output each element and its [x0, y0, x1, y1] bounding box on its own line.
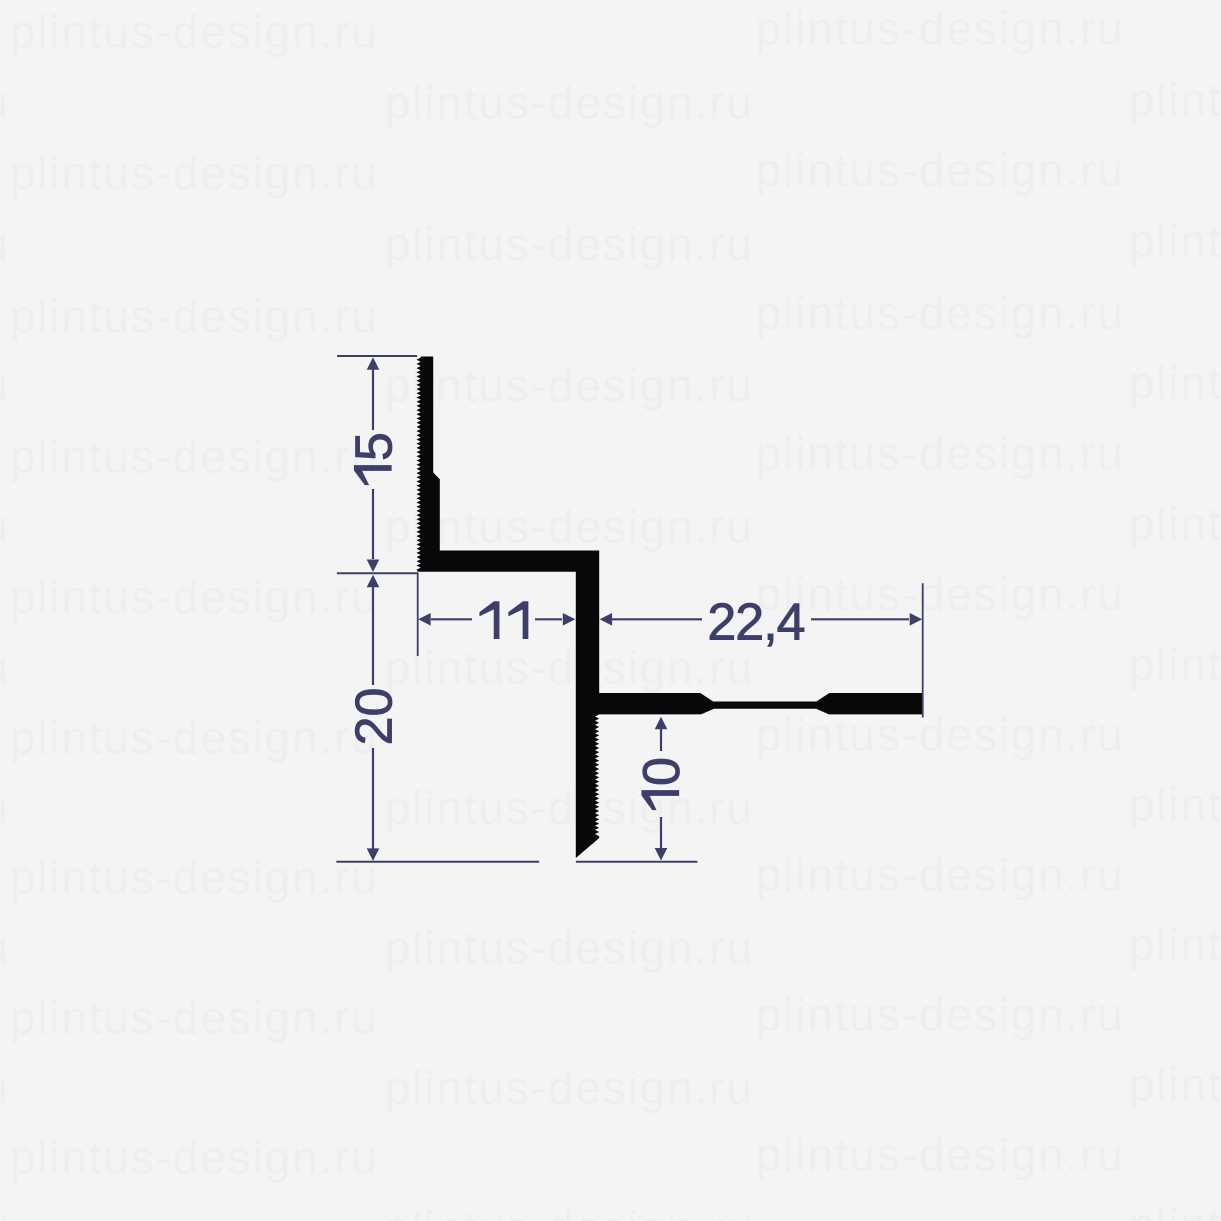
svg-text:plintus-design.ru: plintus-design.ru — [1129, 356, 1221, 408]
svg-text:plintus-design.ru: plintus-design.ru — [10, 711, 379, 763]
svg-text:plintus-design.ru: plintus-design.ru — [1129, 1058, 1221, 1110]
svg-text:plintus-design.ru: plintus-design.ru — [756, 708, 1125, 760]
svg-text:plintus-design.ru: plintus-design.ru — [1129, 778, 1221, 830]
svg-text:plintus-design.ru: plintus-design.ru — [10, 851, 379, 903]
svg-text:plintus-design.ru: plintus-design.ru — [385, 500, 754, 552]
svg-text:plintus-design.ru: plintus-design.ru — [10, 571, 379, 623]
svg-text:plintus-design.ru: plintus-design.ru — [0, 218, 10, 270]
svg-text:5: 5 — [345, 432, 403, 461]
svg-text:plintus-design.ru: plintus-design.ru — [0, 781, 10, 833]
svg-text:plintus-design.ru: plintus-design.ru — [10, 290, 379, 342]
svg-text:plintus-design.ru: plintus-design.ru — [10, 6, 379, 58]
svg-text:plintus-design.ru: plintus-design.ru — [756, 848, 1125, 900]
svg-text:plintus-design.ru: plintus-design.ru — [10, 1131, 379, 1183]
svg-text:plintus-design.ru: plintus-design.ru — [756, 144, 1125, 196]
svg-text:plintus-design.ru: plintus-design.ru — [0, 500, 10, 552]
svg-text:plintus-design.ru: plintus-design.ru — [0, 921, 10, 973]
svg-text:plintus-design.ru: plintus-design.ru — [10, 147, 379, 199]
svg-text:plintus-design.ru: plintus-design.ru — [1129, 638, 1221, 690]
svg-text:plintus-design.ru: plintus-design.ru — [0, 1201, 10, 1221]
svg-text:plintus-design.ru: plintus-design.ru — [385, 641, 754, 693]
svg-text:plintus-design.ru: plintus-design.ru — [756, 427, 1125, 479]
svg-text:plintus-design.ru: plintus-design.ru — [0, 359, 10, 411]
svg-text:plintus-design.ru: plintus-design.ru — [10, 991, 379, 1043]
svg-text:plintus-design.ru: plintus-design.ru — [1129, 73, 1221, 125]
svg-text:20: 20 — [345, 688, 403, 746]
svg-text:plintus-design.ru: plintus-design.ru — [0, 641, 10, 693]
svg-text:22,4: 22,4 — [707, 594, 804, 652]
svg-text:plintus-design.ru: plintus-design.ru — [385, 218, 754, 270]
svg-text:plintus-design.ru: plintus-design.ru — [756, 287, 1125, 339]
svg-text:plintus-design.ru: plintus-design.ru — [1129, 1198, 1221, 1221]
svg-text:plintus-design.ru: plintus-design.ru — [756, 988, 1125, 1040]
svg-text:plintus-design.ru: plintus-design.ru — [0, 76, 10, 128]
svg-text:plintus-design.ru: plintus-design.ru — [385, 1201, 754, 1221]
svg-text:plintus-design.ru: plintus-design.ru — [385, 1061, 754, 1113]
svg-text:plintus-design.ru: plintus-design.ru — [385, 781, 754, 833]
svg-text:0: 0 — [633, 757, 691, 786]
svg-text:plintus-design.ru: plintus-design.ru — [385, 76, 754, 128]
svg-text:plintus-design.ru: plintus-design.ru — [385, 921, 754, 973]
svg-text:plintus-design.ru: plintus-design.ru — [1129, 215, 1221, 267]
svg-text:plintus-design.ru: plintus-design.ru — [10, 430, 379, 482]
svg-text:plintus-design.ru: plintus-design.ru — [756, 3, 1125, 55]
svg-text:plintus-design.ru: plintus-design.ru — [1129, 918, 1221, 970]
svg-text:plintus-design.ru: plintus-design.ru — [756, 568, 1125, 620]
svg-text:plintus-design.ru: plintus-design.ru — [756, 1128, 1125, 1180]
svg-text:plintus-design.ru: plintus-design.ru — [1129, 497, 1221, 549]
svg-text:plintus-design.ru: plintus-design.ru — [385, 359, 754, 411]
svg-text:plintus-design.ru: plintus-design.ru — [0, 1061, 10, 1113]
